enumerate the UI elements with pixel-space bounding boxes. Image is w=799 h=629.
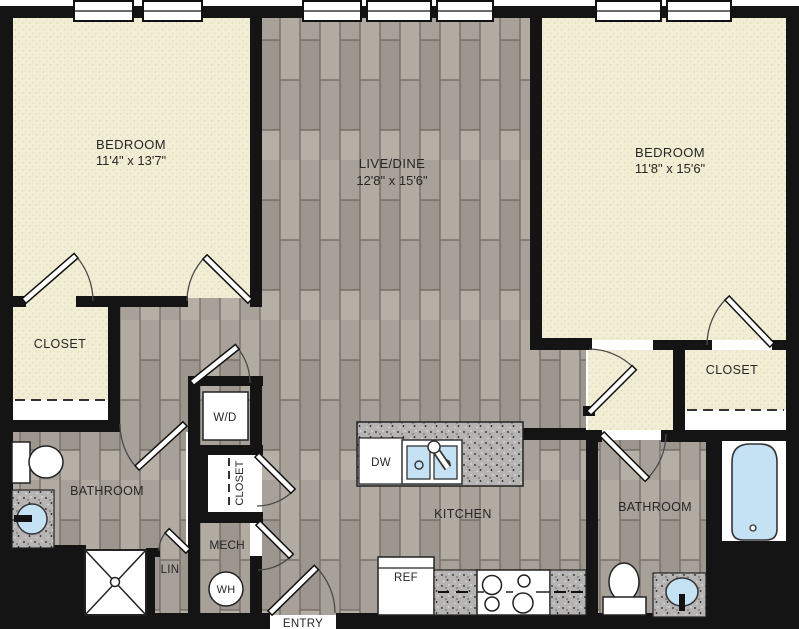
floor-bedroom-right <box>542 18 786 340</box>
floorplan-canvas: BEDROOM 11'4" x 13'7" LIVE/DINE 12'8" x … <box>0 0 799 629</box>
washer-dryer-label: W/D <box>213 412 236 424</box>
floor-hall-connector <box>188 296 262 376</box>
bedroom-right-dims: 11'8" x 15'6" <box>635 161 706 176</box>
linen-label: LIN <box>161 564 180 576</box>
floor-hallway-left <box>120 296 188 432</box>
floor-livedine <box>262 18 530 615</box>
closet-right-shelf <box>685 410 786 430</box>
floor-finishes <box>13 18 786 615</box>
closet-left-shelf <box>13 400 108 420</box>
floor-linen <box>152 548 188 615</box>
closet-right-label: CLOSET <box>706 363 758 377</box>
entry-label: ENTRY <box>283 618 323 629</box>
toilet-left-bowl <box>29 446 63 478</box>
dishwasher-label: DW <box>371 457 391 469</box>
livedine-dims: 12'8" x 15'6" <box>356 173 428 188</box>
windows <box>74 1 731 21</box>
closet-left-label: CLOSET <box>34 337 86 351</box>
bedroom-right-label: BEDROOM <box>635 145 705 160</box>
kitchen-faucet-base <box>428 441 440 453</box>
shower-drain <box>111 578 120 587</box>
bathroom-left-label: BATHROOM <box>70 484 144 498</box>
sink-right-faucet <box>679 594 685 611</box>
bathroom-right-label: BATHROOM <box>618 500 692 514</box>
floor-vestibule-right <box>588 350 673 430</box>
bedroom-left-label: BEDROOM <box>96 137 166 152</box>
mech-label: MECH <box>209 538 244 552</box>
refrigerator-unit <box>378 557 434 615</box>
closet-hall-label: CLOSET <box>234 460 246 505</box>
bathtub-drain <box>750 525 756 531</box>
sink-left-faucet <box>14 515 32 522</box>
kitchen-sink-basin-left <box>407 446 430 479</box>
floor-closet-right <box>685 350 786 410</box>
water-heater-label: WH <box>217 584 236 596</box>
toilet-left-tank <box>12 442 30 483</box>
refrigerator-label: REF <box>394 572 418 584</box>
toilet-right-tank <box>603 597 646 615</box>
livedine-label: LIVE/DINE <box>359 156 425 171</box>
floorplan-drawing: BEDROOM 11'4" x 13'7" LIVE/DINE 12'8" x … <box>0 0 799 629</box>
toilet-right-bowl <box>609 563 639 601</box>
kitchen-label: KITCHEN <box>434 507 492 521</box>
bedroom-left-dims: 11'4" x 13'7" <box>96 153 167 168</box>
